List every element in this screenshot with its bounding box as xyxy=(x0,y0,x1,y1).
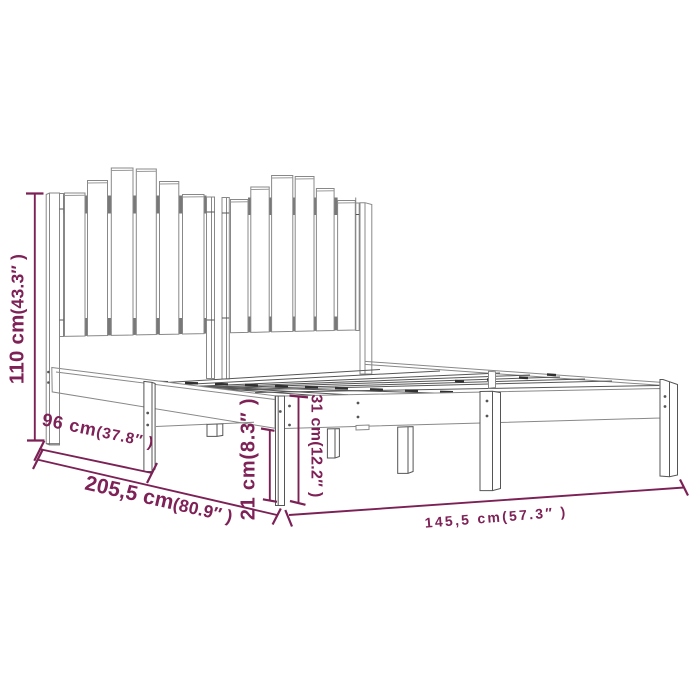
svg-text:31 cm(12.2″ ): 31 cm(12.2″ ) xyxy=(308,394,325,497)
svg-text:21 cm(8.3″ ): 21 cm(8.3″ ) xyxy=(238,398,260,521)
svg-text:110 cm(43.3″ ): 110 cm(43.3″ ) xyxy=(6,254,29,384)
